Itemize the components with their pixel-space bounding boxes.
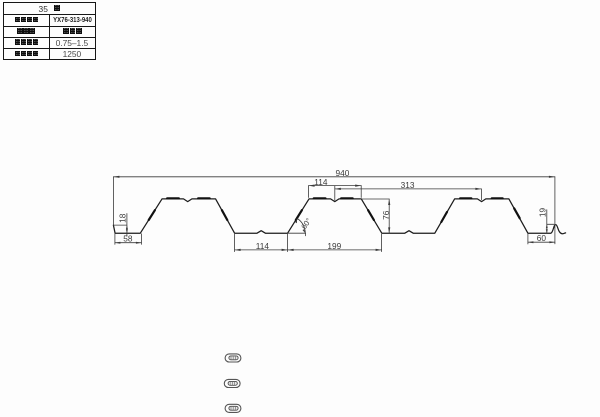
svg-text:114: 114 <box>314 177 328 187</box>
svg-text:58: 58 <box>123 234 133 244</box>
svg-text:940: 940 <box>335 168 349 178</box>
svg-text:199: 199 <box>327 241 341 251</box>
svg-text:60: 60 <box>537 233 547 243</box>
svg-text:76: 76 <box>381 210 391 220</box>
svg-text:19: 19 <box>538 208 548 218</box>
svg-text:114: 114 <box>256 241 270 251</box>
svg-text:60°: 60° <box>299 216 313 231</box>
svg-text:18: 18 <box>118 213 128 223</box>
svg-text:313: 313 <box>401 180 415 190</box>
